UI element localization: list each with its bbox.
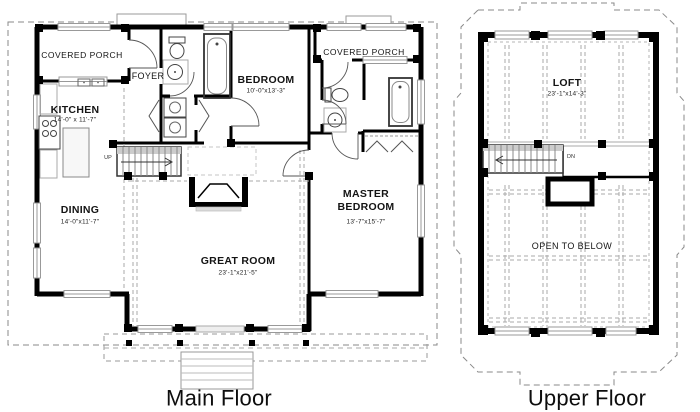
bedroom-dims: 10'-0"x13'-3" [247, 87, 286, 94]
windows-main [34, 24, 425, 333]
main-floor-caption: Main Floor [166, 385, 272, 410]
kitchen-island [63, 128, 89, 177]
dining-dims: 14'-0"x11'-7" [61, 218, 99, 225]
great-room-label: GREAT ROOM [201, 255, 276, 267]
kitchen-dims: 14'-0" x 11'-7" [54, 116, 97, 123]
deck-and-steps [104, 334, 427, 389]
loft-dims: 23'-1"x14'-3" [548, 90, 587, 97]
stairs-up-label: UP [104, 155, 112, 161]
upper-floor-plan [454, 3, 684, 385]
open-to-below-label: OPEN TO BELOW [532, 241, 612, 251]
washer [164, 98, 186, 117]
great-room-dims: 23'-1"x21'-5" [219, 269, 258, 276]
master-bedroom-label: MASTER BEDROOM [329, 188, 403, 214]
upper-floor-caption: Upper Floor [528, 385, 646, 410]
kitchen-label: KITCHEN [51, 104, 100, 116]
stairs-upper [483, 145, 563, 173]
covered-porch-left-label: COVERED PORCH [41, 51, 123, 61]
master-bedroom-dims: 13'-7"x15'-7" [347, 218, 386, 225]
fireplace [189, 177, 248, 211]
covered-porch-right-label: COVERED PORCH [323, 48, 405, 58]
foyer-label: FOYER [132, 71, 165, 81]
dining-label: DINING [61, 204, 100, 216]
kitchen-fixtures [39, 79, 104, 178]
stairs-main [117, 147, 181, 176]
toilet [169, 37, 185, 43]
chimney [548, 179, 592, 204]
dryer [164, 118, 186, 137]
loft-label: LOFT [553, 77, 582, 89]
stairs-dn-label: DN [567, 154, 575, 160]
bedroom-label: BEDROOM [238, 74, 295, 86]
closet-bifold-doors [366, 141, 413, 152]
floorplan-canvas: COVERED PORCH FOYER KITCHEN 14'-0" x 11'… [0, 0, 700, 412]
